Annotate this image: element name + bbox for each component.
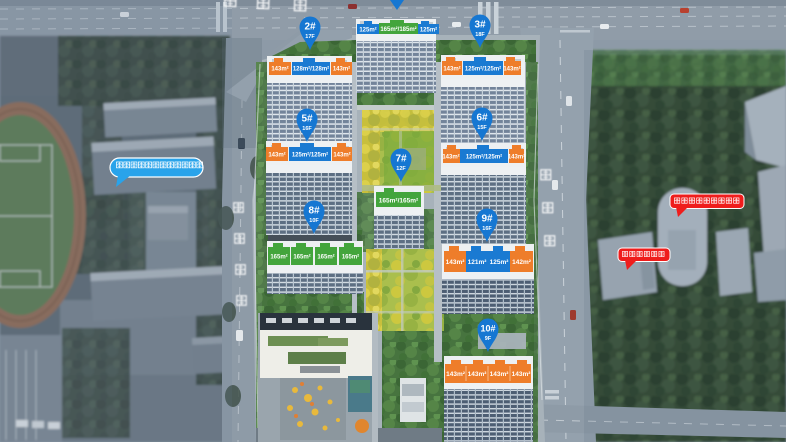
svg-text:125m²: 125m² [359, 27, 376, 34]
svg-text:143m²: 143m² [333, 152, 350, 159]
svg-text:143m²: 143m² [503, 66, 520, 73]
svg-text:143m²: 143m² [490, 371, 510, 378]
svg-text:10#: 10# [480, 324, 495, 334]
svg-text:143m²: 143m² [446, 371, 466, 378]
svg-text:17F: 17F [305, 34, 315, 40]
svg-text:165m²: 165m² [317, 254, 334, 261]
svg-text:143m²: 143m² [508, 154, 525, 161]
svg-text:16F: 16F [302, 126, 312, 132]
svg-text:165m²: 165m² [293, 254, 310, 261]
svg-text:125m²/125m²: 125m²/125m² [466, 154, 502, 161]
svg-text:12F: 12F [396, 166, 406, 172]
svg-text:5#: 5# [301, 114, 313, 125]
svg-text:128m²/128m²: 128m²/128m² [293, 66, 329, 73]
svg-text:125m²: 125m² [490, 259, 510, 266]
svg-text:142m²: 142m² [512, 259, 532, 266]
svg-text:125m²/125m²: 125m²/125m² [292, 152, 328, 159]
svg-text:165m²: 165m² [342, 254, 359, 261]
svg-text:143m²: 143m² [333, 66, 350, 73]
svg-text:9F: 9F [485, 336, 492, 342]
svg-text:165m²: 165m² [270, 254, 287, 261]
svg-text:143m²: 143m² [512, 371, 532, 378]
svg-text:15F: 15F [477, 125, 487, 131]
svg-text:18F: 18F [475, 32, 485, 38]
svg-text:6#: 6# [476, 113, 488, 124]
svg-text:7#: 7# [395, 154, 407, 165]
svg-text:143m²: 143m² [271, 66, 288, 73]
svg-text:143m²: 143m² [468, 371, 488, 378]
svg-text:143m²: 143m² [442, 154, 459, 161]
svg-text:125m²: 125m² [420, 27, 437, 34]
svg-text:125m²/125m²: 125m²/125m² [465, 66, 501, 73]
svg-text:8#: 8# [308, 206, 320, 217]
svg-text:143m²: 143m² [443, 66, 460, 73]
svg-text:2#: 2# [304, 22, 316, 33]
svg-text:3#: 3# [474, 20, 486, 31]
svg-text:165m²/185m²: 165m²/185m² [380, 26, 416, 33]
svg-text:165m²/165m²: 165m²/165m² [379, 198, 419, 205]
svg-text:143m²: 143m² [446, 259, 466, 266]
svg-text:121m²: 121m² [468, 259, 488, 266]
svg-text:9#: 9# [481, 214, 493, 225]
svg-text:16F: 16F [482, 226, 492, 232]
svg-text:10F: 10F [309, 218, 319, 224]
svg-text:143m²: 143m² [268, 152, 285, 159]
